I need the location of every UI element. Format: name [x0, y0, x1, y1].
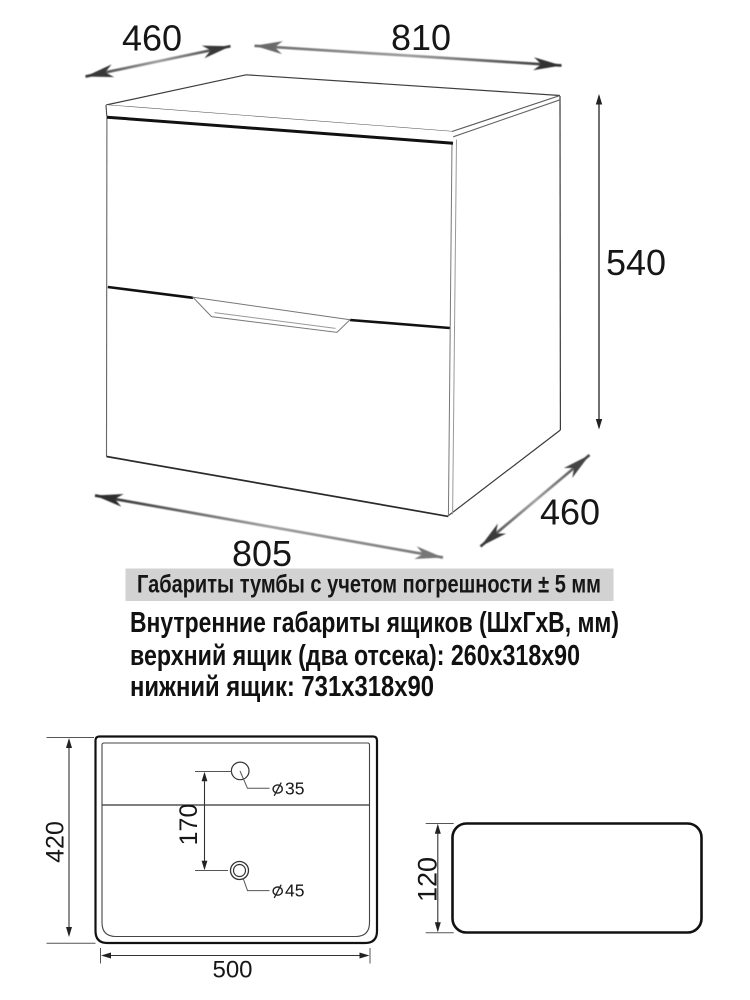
- svg-text:500: 500: [212, 957, 252, 984]
- svg-text:420: 420: [42, 821, 70, 863]
- svg-text:Габариты тумбы с учетом погреш: Габариты тумбы с учетом погрешности ± 5 …: [137, 571, 601, 599]
- svg-text:170: 170: [175, 804, 203, 846]
- svg-text:460: 460: [122, 18, 182, 59]
- svg-text:540: 540: [606, 242, 666, 283]
- svg-text:Внутренние габариты ящиков (Шх: Внутренние габариты ящиков (ШхГхВ, мм): [130, 607, 619, 639]
- svg-text:45: 45: [285, 881, 304, 901]
- svg-text:120: 120: [413, 857, 443, 902]
- svg-text:805: 805: [232, 533, 292, 574]
- svg-text:нижний ящик: 731х318х90: нижний ящик: 731х318х90: [130, 671, 434, 703]
- svg-text:35: 35: [285, 779, 304, 799]
- svg-text:460: 460: [540, 492, 600, 533]
- svg-text:810: 810: [391, 17, 451, 58]
- svg-text:верхний ящик (два отсека): 260: верхний ящик (два отсека): 260х318х90: [130, 640, 580, 672]
